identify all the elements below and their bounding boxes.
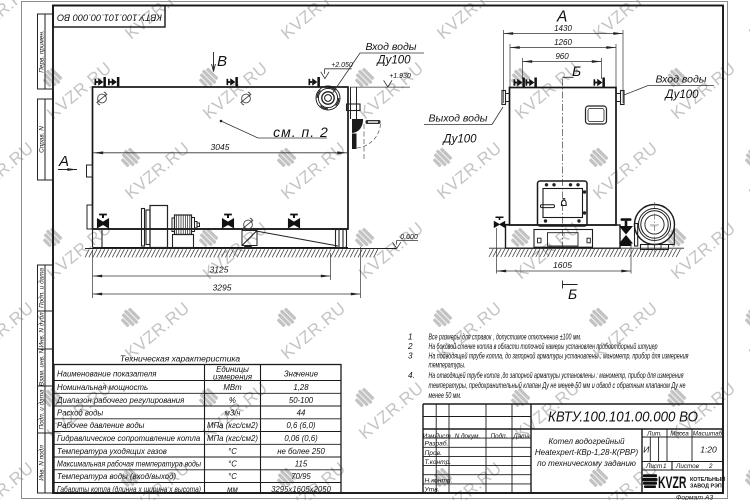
svg-text:1:20: 1:20 — [700, 445, 717, 455]
svg-text:2: 2 — [708, 463, 713, 470]
svg-text:На отводящей трубе котла ,до з: На отводящей трубе котла ,до запорной ар… — [429, 371, 684, 380]
svg-text:Все размеры для справок , допу: Все размеры для справок , допустимое отк… — [429, 333, 582, 342]
svg-text:И: И — [643, 445, 650, 455]
svg-text:KVZR.RU: KVZR.RU — [277, 0, 349, 43]
svg-text:°С: °С — [228, 460, 237, 469]
svg-text:Рабочее давление воды: Рабочее давление воды — [57, 421, 145, 430]
svg-text:0,6 (6,0): 0,6 (6,0) — [286, 421, 315, 430]
svg-text:1: 1 — [663, 463, 667, 470]
svg-text:3045: 3045 — [211, 142, 230, 152]
svg-text:Б: Б — [568, 286, 577, 302]
svg-text:На подводящей трубе котла, д: На подводящей трубе котла, до запорной а… — [429, 351, 689, 360]
svg-text:960: 960 — [555, 52, 569, 61]
svg-text:МПа (кгс/см2): МПа (кгс/см2) — [207, 421, 258, 430]
svg-text:KVZR.RU: KVZR.RU — [745, 0, 750, 43]
svg-text:°С: °С — [228, 447, 237, 456]
svg-text:KVZR.RU: KVZR.RU — [121, 138, 193, 203]
svg-text:3295х1605х2050: 3295х1605х2050 — [271, 485, 331, 494]
svg-text:Номинальная мощность: Номинальная мощность — [57, 383, 148, 392]
svg-text:Ду100: Ду100 — [663, 89, 699, 101]
svg-text:1605: 1605 — [553, 260, 572, 270]
svg-text:А: А — [58, 153, 69, 170]
svg-text:Вход воды: Вход воды — [366, 41, 417, 53]
svg-text:KVZR.RU: KVZR.RU — [277, 138, 349, 203]
svg-text:температуры.: температуры. — [429, 361, 466, 370]
svg-text:Значение: Значение — [284, 370, 319, 379]
svg-text:Максимальная рабочая температу: Максимальная рабочая температура воды — [57, 460, 201, 469]
svg-text:KVZR.RU: KVZR.RU — [43, 218, 115, 283]
svg-text:Heatexpert-КВр-1,28-К(РВР): Heatexpert-КВр-1,28-К(РВР) — [535, 448, 639, 457]
svg-text:Гидравлическое сопротивление к: Гидравлическое сопротивление котла — [57, 434, 201, 443]
svg-text:Разраб.: Разраб. — [425, 440, 449, 448]
svg-text:Подп. и дата: Подп. и дата — [38, 389, 46, 429]
svg-text:KVZR.RU: KVZR.RU — [0, 138, 37, 203]
svg-text:Температура воды (вход/выход): Температура воды (вход/выход) — [57, 472, 176, 481]
svg-text:А: А — [556, 9, 567, 26]
svg-text:по техническому заданию: по техническому заданию — [537, 459, 636, 468]
svg-text:3295: 3295 — [213, 283, 232, 293]
svg-text:3125: 3125 — [210, 265, 229, 275]
svg-text:4.: 4. — [408, 371, 415, 380]
svg-text:50-100: 50-100 — [289, 396, 314, 405]
svg-text:Утв.: Утв. — [424, 487, 440, 494]
svg-text:Ду100: Ду100 — [441, 134, 477, 146]
svg-text:МПа (кгс/см2): МПа (кгс/см2) — [207, 434, 258, 443]
svg-text:1430: 1430 — [554, 24, 572, 33]
svg-text:KVZR.RU: KVZR.RU — [355, 218, 427, 283]
svg-text:Лист: Лист — [645, 463, 662, 470]
svg-text:0,06 (0,6): 0,06 (0,6) — [284, 434, 318, 443]
svg-text:KVZR: KVZR — [658, 473, 687, 492]
svg-text:МВт: МВт — [223, 383, 242, 392]
svg-text:0.000: 0.000 — [400, 234, 418, 241]
svg-text:Техническая характеристика: Техническая характеристика — [120, 354, 241, 364]
svg-text:115: 115 — [295, 460, 308, 469]
svg-text:KVZR.RU: KVZR.RU — [745, 138, 750, 203]
svg-text:Лист: Лист — [433, 433, 450, 440]
svg-text:KVZR.RU: KVZR.RU — [589, 138, 661, 203]
svg-text:Расход воды: Расход воды — [57, 409, 103, 418]
svg-text:Габариты котла (длинна х ширин: Габариты котла (длинна х ширина х высота… — [57, 485, 201, 494]
svg-text:Диапазон рабочего регулировани: Диапазон рабочего регулирования — [56, 396, 185, 405]
svg-text:мм: мм — [227, 485, 238, 494]
svg-text:1: 1 — [408, 333, 413, 342]
svg-text:1,28: 1,28 — [293, 383, 309, 392]
svg-text:не более 250: не более 250 — [277, 447, 325, 456]
svg-text:Вход воды: Вход воды — [656, 74, 707, 86]
svg-text:Взам. инв. N: Взам. инв. N — [39, 349, 46, 387]
svg-text:Котел водогрейный: Котел водогрейный — [548, 437, 625, 446]
svg-text:KVZR.RU: KVZR.RU — [511, 218, 583, 283]
svg-text:Т.контр.: Т.контр. — [425, 459, 452, 466]
svg-text:Инв. N дубл: Инв. N дубл — [38, 312, 46, 348]
svg-text:+2.050: +2.050 — [331, 62, 353, 69]
svg-text:KVZR.RU: KVZR.RU — [433, 0, 505, 43]
svg-text:Формат А3: Формат А3 — [676, 495, 713, 500]
svg-text:КОТЕЛЬНЫЙ: КОТЕЛЬНЫЙ — [690, 475, 725, 483]
svg-text:KVZR.RU: KVZR.RU — [0, 458, 37, 500]
svg-text:N докум.: N докум. — [455, 432, 480, 440]
svg-text:Масса: Масса — [670, 430, 689, 437]
svg-text:м3/ч: м3/ч — [225, 409, 241, 418]
svg-text:Подп. и дата: Подп. и дата — [38, 268, 46, 308]
svg-text:70/95: 70/95 — [291, 472, 311, 481]
svg-text:Температура уходящих газов: Температура уходящих газов — [57, 447, 167, 456]
svg-text:Инв. N подл: Инв. N подл — [38, 445, 46, 481]
svg-text:1260: 1260 — [554, 38, 572, 47]
svg-text:+1.930: +1.930 — [389, 73, 411, 80]
svg-text:Листов: Листов — [675, 463, 700, 470]
svg-text:Ду100: Ду100 — [375, 55, 411, 67]
svg-text:Подп.: Подп. — [491, 432, 508, 440]
svg-text:менее 50 мм.: менее 50 мм. — [429, 391, 462, 400]
svg-text:KVZR.RU: KVZR.RU — [433, 138, 505, 203]
svg-text:Перв. примен.: Перв. примен. — [39, 30, 46, 72]
svg-text:KVZR.RU: KVZR.RU — [745, 298, 750, 363]
svg-text:В: В — [217, 53, 227, 70]
svg-text:KVZR.RU: KVZR.RU — [0, 0, 37, 43]
svg-text:KVZR.RU: KVZR.RU — [589, 0, 661, 43]
svg-text:измерения: измерения — [213, 373, 253, 382]
svg-text:ЗАВОД РЭП: ЗАВОД РЭП — [690, 484, 722, 490]
svg-text:Масштаб: Масштаб — [693, 429, 723, 437]
svg-text:см. п. 2: см. п. 2 — [273, 124, 329, 140]
svg-text:Справ. N: Справ. N — [39, 126, 46, 153]
svg-text:Лит.: Лит. — [646, 430, 662, 437]
svg-text:Б: Б — [572, 63, 581, 79]
svg-text:КВТУ.100.101.00.000 ВО: КВТУ.100.101.00.000 ВО — [548, 409, 698, 426]
svg-text:Н.контр.: Н.контр. — [425, 477, 453, 484]
svg-text:KVZR.RU: KVZR.RU — [355, 58, 427, 123]
svg-text:44: 44 — [297, 409, 306, 418]
svg-text:КВЗР: КВЗР — [650, 224, 659, 228]
svg-text:3: 3 — [408, 351, 413, 360]
svg-text:Выход воды: Выход воды — [428, 113, 487, 125]
svg-text:%: % — [229, 396, 236, 405]
svg-text:КВТУ.100.101.00.000 ВО: КВТУ.100.101.00.000 ВО — [57, 13, 162, 23]
svg-text:На боковой стенке котла в обла: На боковой стенке котла в области топочн… — [429, 342, 658, 351]
svg-text:KVZR.RU: KVZR.RU — [199, 58, 271, 123]
svg-text:Пров.: Пров. — [425, 450, 443, 457]
svg-text:Дата: Дата — [512, 433, 530, 440]
svg-text:Наименование показателя: Наименование показателя — [57, 370, 157, 379]
svg-text:KVZR.RU: KVZR.RU — [43, 58, 115, 123]
svg-text:KVZR.RU: KVZR.RU — [355, 378, 427, 443]
svg-text:температуры, предохранительный: температуры, предохранительный клапан Ду… — [429, 381, 686, 390]
svg-text:2: 2 — [407, 342, 413, 351]
svg-text:KVZR.RU: KVZR.RU — [277, 298, 349, 363]
svg-text:KVZR.RU: KVZR.RU — [667, 218, 739, 283]
svg-text:°С: °С — [228, 472, 237, 481]
svg-text:KVZR.RU: KVZR.RU — [0, 298, 37, 363]
